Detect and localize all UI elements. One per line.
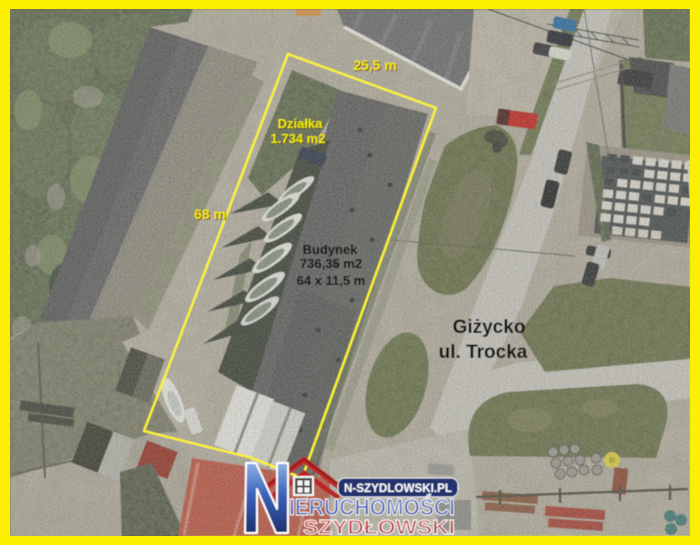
svg-text:N-SZYDLOWSKI.PL: N-SZYDLOWSKI.PL bbox=[344, 481, 452, 495]
svg-text:Budynek: Budynek bbox=[303, 242, 359, 257]
svg-text:SZYDŁOWSKI: SZYDŁOWSKI bbox=[303, 517, 455, 539]
svg-text:IERUCHOMOŚCI: IERUCHOMOŚCI bbox=[289, 493, 455, 520]
svg-text:Giżycko: Giżycko bbox=[453, 317, 526, 338]
svg-text:25,5 m: 25,5 m bbox=[353, 57, 397, 73]
svg-text:1.734 m2: 1.734 m2 bbox=[271, 131, 326, 146]
svg-text:Działka: Działka bbox=[278, 116, 324, 131]
svg-text:68 m: 68 m bbox=[194, 206, 226, 222]
svg-text:64 x 11,5 m: 64 x 11,5 m bbox=[297, 273, 366, 288]
svg-text:ul. Trocka: ul. Trocka bbox=[439, 342, 528, 363]
svg-text:736,35 m2: 736,35 m2 bbox=[300, 256, 362, 271]
